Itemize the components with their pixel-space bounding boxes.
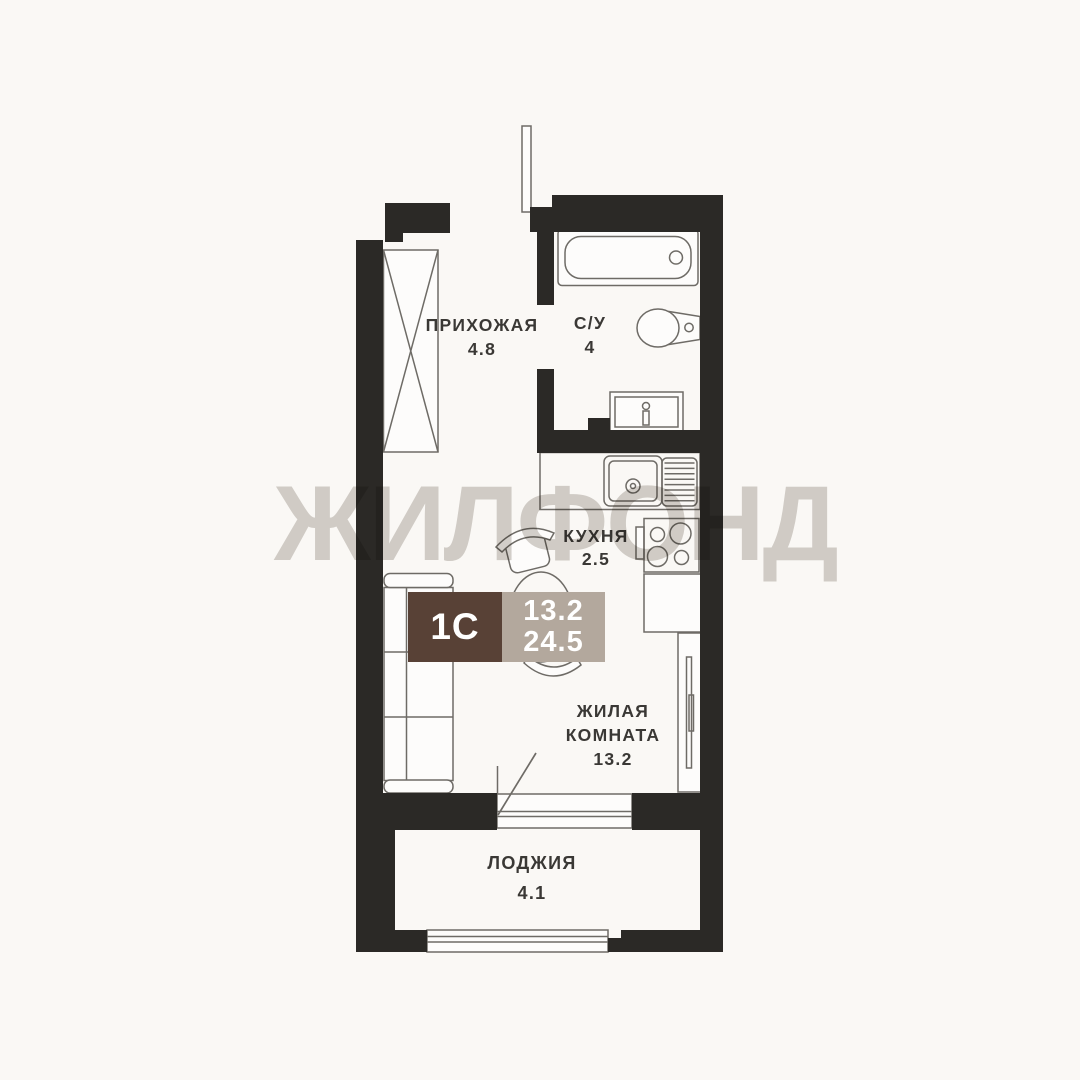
room-area: 4.8 [426, 337, 539, 361]
tall-cabinet-icon [678, 633, 702, 792]
room-label-bathroom: С/У 4 [574, 311, 606, 359]
bathtub-icon [558, 230, 698, 286]
wall [700, 232, 723, 952]
wall [537, 232, 554, 305]
wall [385, 233, 403, 242]
wall [632, 793, 723, 830]
toilet-icon [637, 309, 700, 347]
room-name: КУХНЯ [563, 525, 628, 548]
kitchen-sink-icon [604, 456, 697, 506]
total-area-value: 24.5 [523, 627, 583, 658]
apartment-area-values: 13.2 24.5 [502, 592, 605, 662]
room-area: 2.5 [563, 548, 628, 571]
base-cabinet-icon [644, 574, 701, 632]
entrance-door-icon [522, 126, 531, 212]
room-label-kitchen: КУХНЯ 2.5 [563, 525, 628, 571]
stove-icon [636, 519, 699, 573]
loggia-window-icon [427, 930, 608, 952]
room-area: 4 [574, 335, 606, 359]
room-name: ЛОДЖИЯ [487, 848, 576, 878]
wall [552, 195, 723, 232]
room-label-living-room: ЖИЛАЯ КОМНАТА 13.2 [547, 699, 679, 771]
wall [621, 930, 723, 952]
wall [383, 793, 497, 830]
balcony-window-icon [497, 794, 632, 828]
wall [588, 418, 610, 430]
room-area: 4.1 [487, 878, 576, 908]
wall [385, 203, 450, 233]
floor-plan-drawing [0, 0, 1080, 1080]
room-name: ПРИХОЖАЯ [426, 313, 539, 337]
apartment-type-label: 1С [408, 592, 502, 662]
wall [530, 207, 554, 232]
wall [537, 430, 720, 453]
bathroom-sink-icon [610, 392, 683, 432]
room-area: 13.2 [547, 747, 679, 771]
floor-plan: ПРИХОЖАЯ 4.8 С/У 4 КУХНЯ 2.5 ЖИЛАЯ КОМНА… [0, 0, 1080, 1080]
wall [356, 930, 427, 952]
room-label-loggia: ЛОДЖИЯ 4.1 [487, 848, 576, 908]
room-name: С/У [574, 311, 606, 335]
room-name: ЖИЛАЯ КОМНАТА [547, 699, 679, 747]
room-label-hallway: ПРИХОЖАЯ 4.8 [426, 313, 539, 361]
chair-icon [496, 528, 554, 574]
apartment-type-badge: 1С 13.2 24.5 [408, 592, 605, 662]
wall [537, 369, 554, 430]
wall [608, 938, 621, 952]
living-area-value: 13.2 [523, 596, 583, 627]
